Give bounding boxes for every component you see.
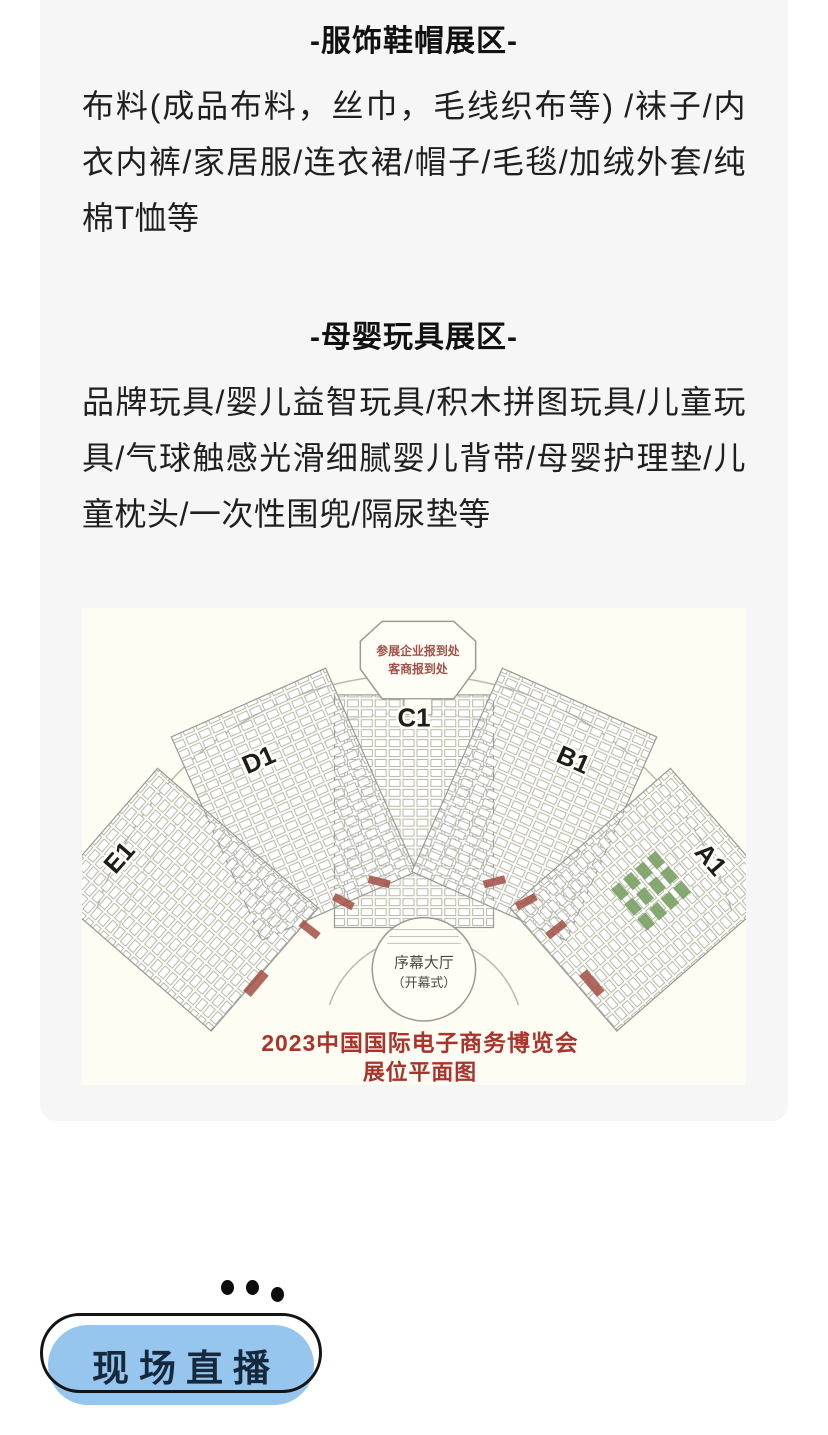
live-broadcast-button[interactable]: 现场直播 [40, 1313, 322, 1405]
dot-icon [271, 1287, 284, 1302]
ellipsis-dots [221, 1280, 284, 1302]
reception-label-line1: 参展企业报到处 [375, 644, 459, 658]
section-heading-clothing: -服饰鞋帽展区- [82, 20, 746, 64]
dot-icon [246, 1280, 259, 1295]
reception-label-line2: 客商报到处 [387, 662, 448, 676]
section-heading-baby-toys: -母婴玩具展区- [82, 316, 746, 360]
section-body-baby-toys: 品牌玩具/婴儿益智玩具/积木拼图玩具/儿童玩具/气球触感光滑细腻婴儿背带/母婴护… [82, 374, 746, 542]
floorplan-svg: 参展企业报到处 客商报到处 C1 D1 B1 E1 A1 序幕大厅 （开幕式） [82, 608, 746, 1085]
zone-label-c1: C1 [397, 705, 430, 733]
opening-hall-label: 序幕大厅 [394, 954, 454, 971]
opening-hall-sub-label: （开幕式） [392, 975, 457, 990]
section-body-clothing: 布料(成品布料，丝巾，毛线织布等) /袜子/内衣内裤/家居服/连衣裙/帽子/毛毯… [82, 78, 746, 246]
plan-title-line1: 2023中国国际电子商务博览会 [261, 1030, 578, 1056]
live-button-outline [40, 1313, 322, 1393]
floorplan-image: 参展企业报到处 客商报到处 C1 D1 B1 E1 A1 序幕大厅 （开幕式） [82, 608, 746, 1085]
content-card: -服饰鞋帽展区- 布料(成品布料，丝巾，毛线织布等) /袜子/内衣内裤/家居服/… [40, 0, 788, 1121]
plan-title-line2: 展位平面图 [363, 1060, 477, 1085]
dot-icon [221, 1280, 234, 1295]
reception-building [360, 621, 475, 699]
